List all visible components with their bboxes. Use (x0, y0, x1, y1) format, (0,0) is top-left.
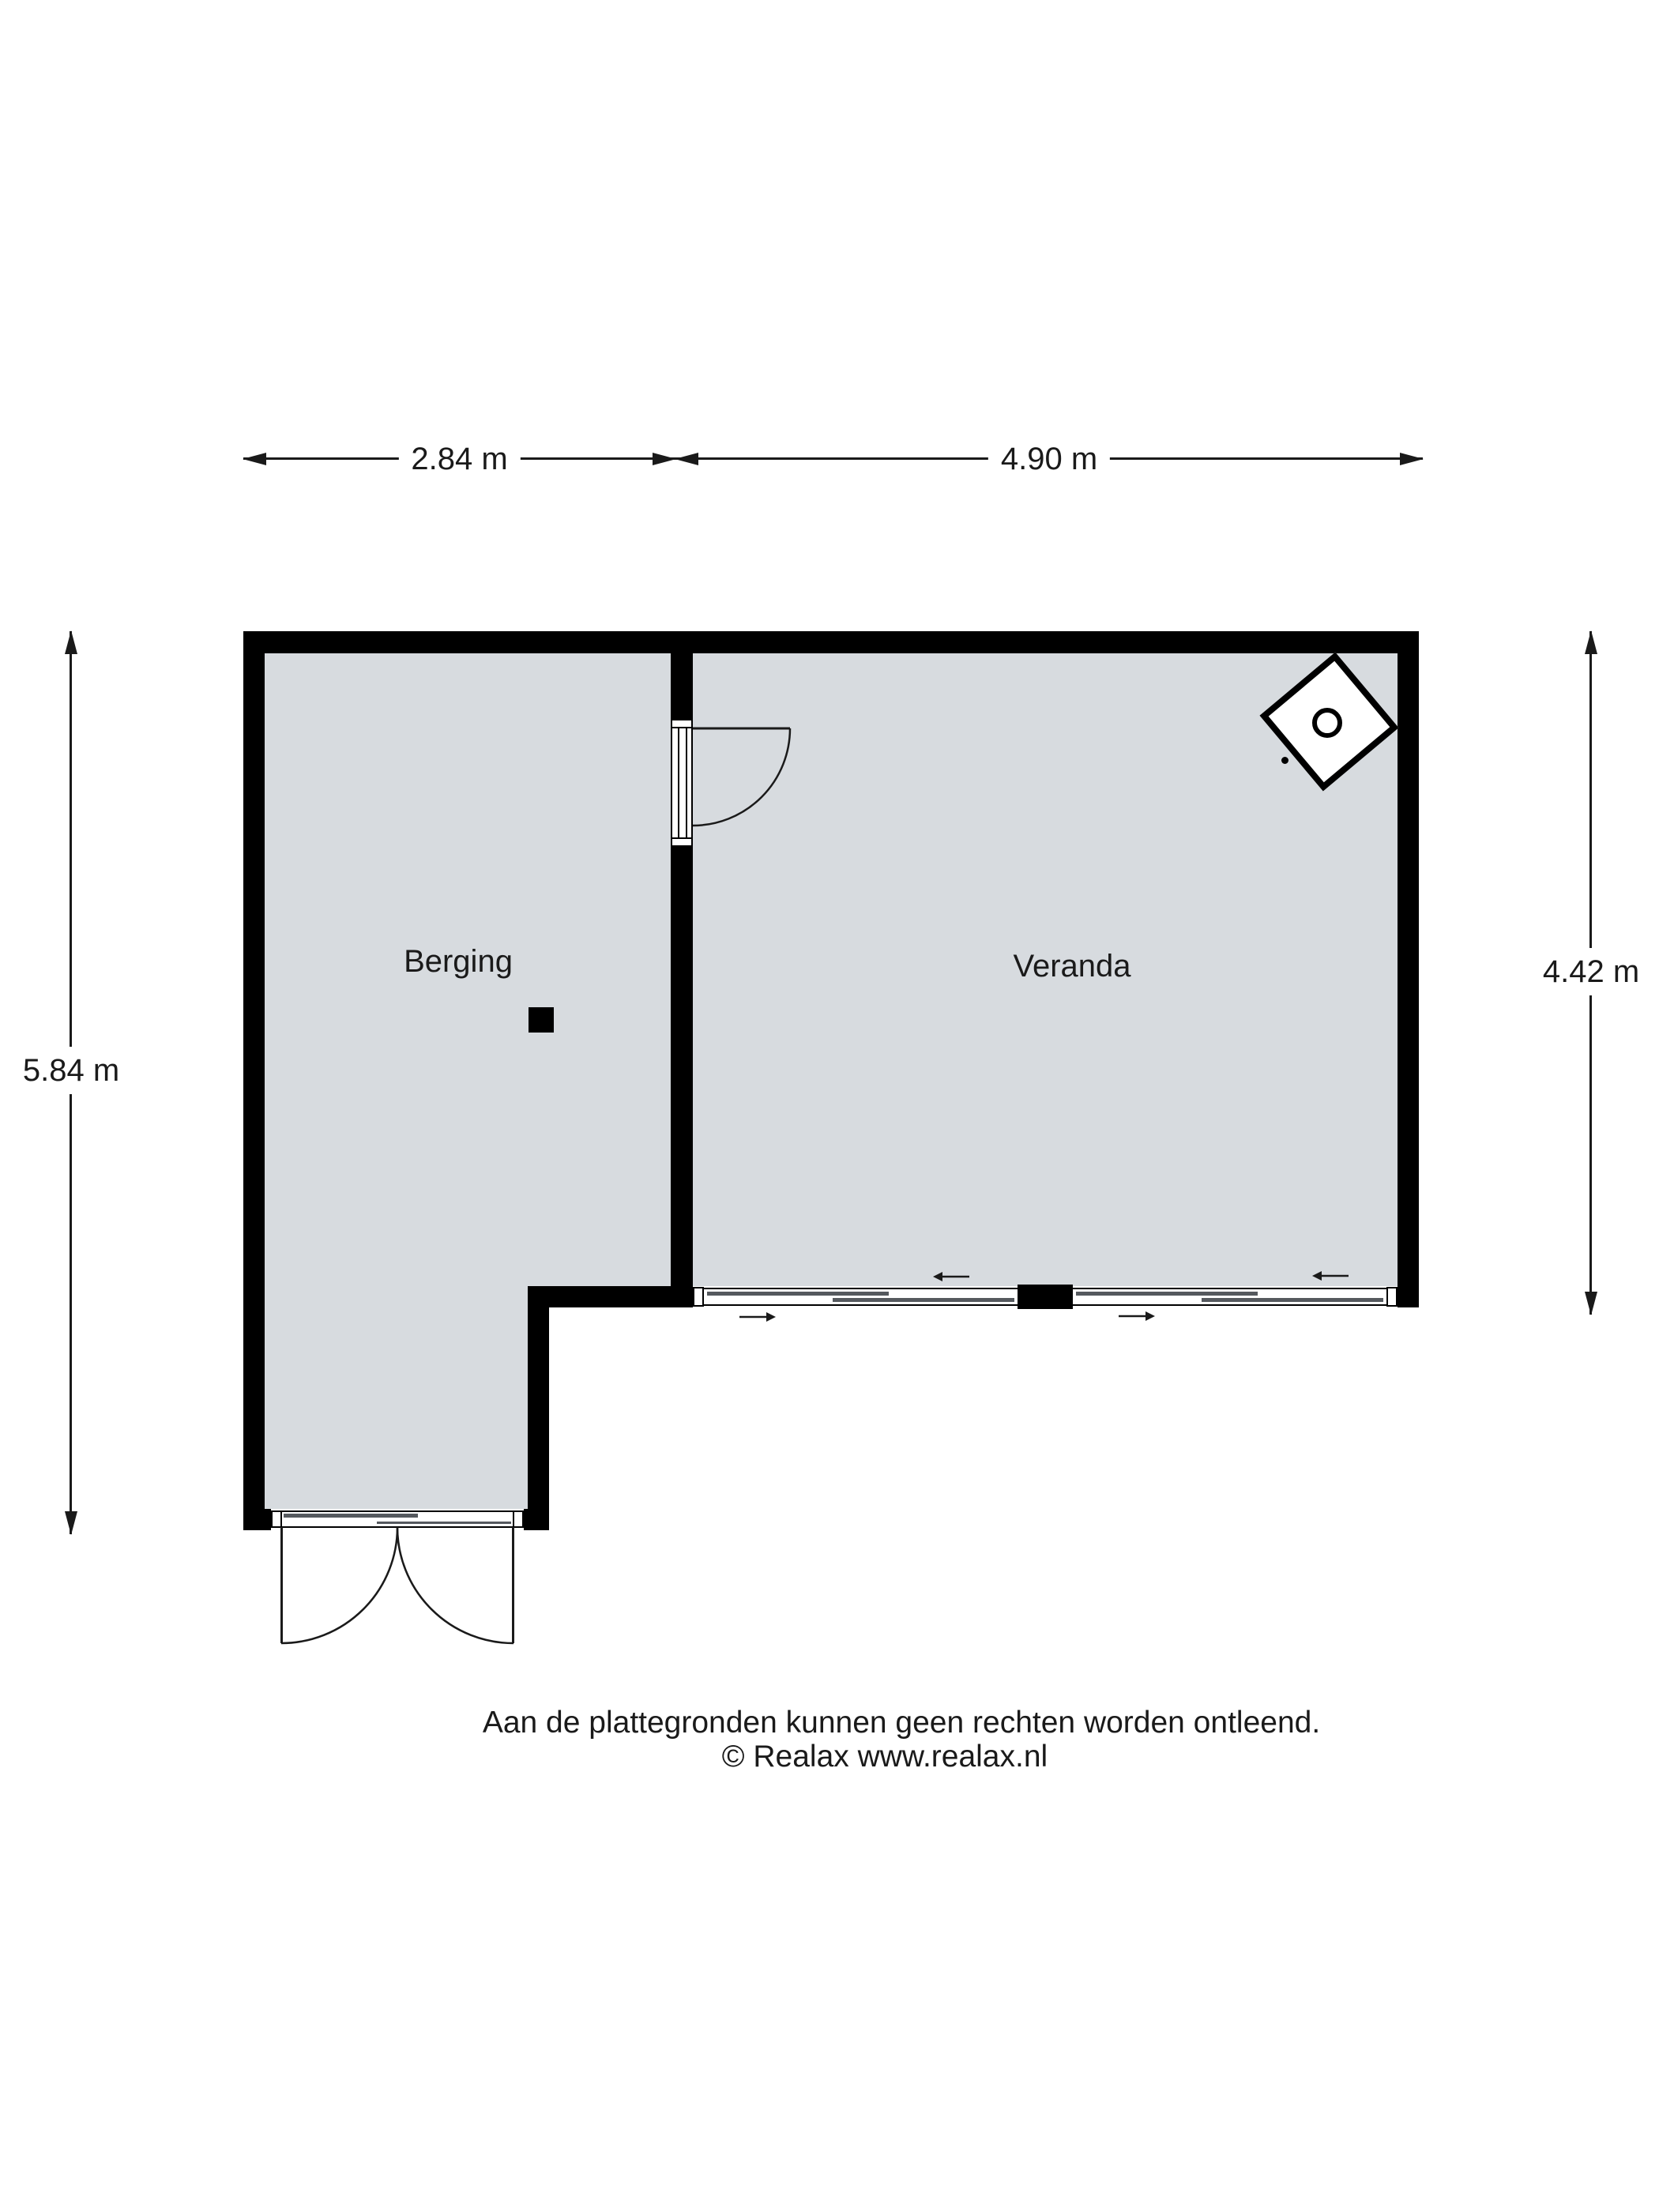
arrowhead-left-icon (675, 453, 698, 465)
column-post (529, 1007, 554, 1033)
wall-top (243, 631, 1419, 653)
room-label-veranda: Veranda (1013, 949, 1130, 984)
threshold-bar (377, 1522, 511, 1524)
double-door-jamb-left (271, 1510, 282, 1528)
double-door-swing-arc-left (281, 1527, 397, 1643)
slide-direction-arrow-right-icon (739, 1310, 776, 1324)
wall-left (243, 653, 265, 1530)
arrowhead-down-icon (65, 1511, 77, 1535)
floor-berging-lower (265, 1286, 528, 1509)
sliding-panel (707, 1292, 889, 1296)
wall-right (1398, 653, 1419, 1307)
stove-hinge-dot-icon (1281, 757, 1288, 764)
wall-berging-lower-right (528, 1307, 549, 1509)
wall-interior-lower (671, 847, 693, 1307)
dimension-label: 4.90 m (988, 443, 1110, 475)
dimension-top-berging: 2.84 m (243, 447, 675, 471)
footer-copyright: © Realax www.realax.nl (722, 1740, 1048, 1774)
floorplan-canvas: 2.84 m 4.90 m 5.84 m 4.42 m (0, 0, 1659, 2212)
interior-door-jamb-top (671, 719, 693, 728)
dimension-left-total: 5.84 m (59, 631, 83, 1534)
wall-step (528, 1286, 671, 1307)
wall-bottom-right-segment (524, 1509, 549, 1530)
dimension-label: 4.42 m (1540, 948, 1642, 995)
arrowhead-right-icon (1400, 453, 1424, 465)
dimension-label: 5.84 m (20, 1047, 122, 1094)
room-label-berging: Berging (404, 944, 513, 979)
arrowhead-up-icon (1585, 630, 1597, 654)
sliding-door-track-left (704, 1288, 1018, 1306)
double-door-leaf-right (512, 1527, 514, 1643)
slide-direction-arrow-left-icon (1312, 1269, 1349, 1283)
double-door-leaf-left (280, 1527, 283, 1643)
sliding-panel (1076, 1292, 1258, 1296)
slide-direction-arrow-right-icon (1119, 1309, 1155, 1323)
door-line (686, 728, 687, 837)
stove-flue-circle-icon (1312, 708, 1342, 738)
interior-door-closed-leaf (671, 728, 693, 837)
slide-direction-arrow-left-icon (933, 1270, 969, 1284)
sliding-door-track-right (1073, 1288, 1386, 1306)
dimension-top-veranda: 4.90 m (675, 447, 1423, 471)
dimension-right-veranda: 4.42 m (1579, 631, 1603, 1315)
arrowhead-up-icon (65, 630, 77, 654)
threshold-bar (284, 1514, 418, 1518)
sliding-panel (833, 1298, 1014, 1302)
footer-disclaimer: Aan de plattegronden kunnen geen rechten… (483, 1706, 1320, 1740)
wall-interior-upper (671, 653, 693, 719)
double-door-jamb-right (513, 1510, 524, 1528)
door-line (678, 728, 679, 837)
wall-bottom-left-segment (243, 1509, 271, 1530)
double-door-threshold (282, 1510, 513, 1528)
double-door-swing-arc-right (397, 1527, 513, 1643)
sliding-door-jamb-right (1386, 1287, 1398, 1307)
arrowhead-left-icon (243, 453, 266, 465)
sliding-door-jamb-left (693, 1287, 704, 1307)
sliding-door-center-post (1018, 1285, 1073, 1309)
arrowhead-right-icon (653, 453, 676, 465)
sliding-panel (1202, 1298, 1383, 1302)
arrowhead-down-icon (1585, 1292, 1597, 1315)
interior-door-jamb-bottom (671, 837, 693, 847)
dimension-label: 2.84 m (398, 443, 520, 475)
